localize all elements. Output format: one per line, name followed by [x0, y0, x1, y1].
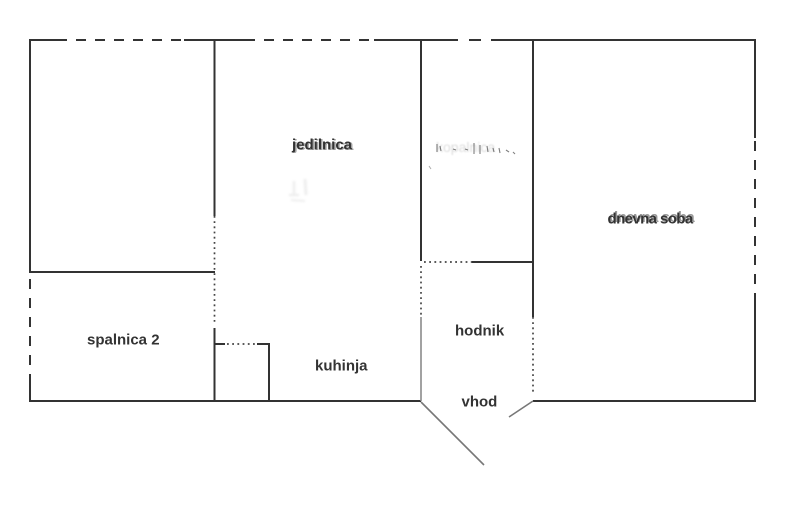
- svg-text:kopalnica: kopalnica: [436, 139, 495, 155]
- svg-text:dnevna soba: dnevna soba: [608, 211, 694, 228]
- svg-text:hodnik: hodnik: [455, 323, 505, 340]
- svg-text:spalnica 2: spalnica 2: [87, 332, 160, 349]
- svg-text:jedilnica: jedilnica: [291, 137, 353, 154]
- svg-text:kuhinja: kuhinja: [315, 358, 368, 375]
- svg-text:vhod: vhod: [462, 394, 498, 411]
